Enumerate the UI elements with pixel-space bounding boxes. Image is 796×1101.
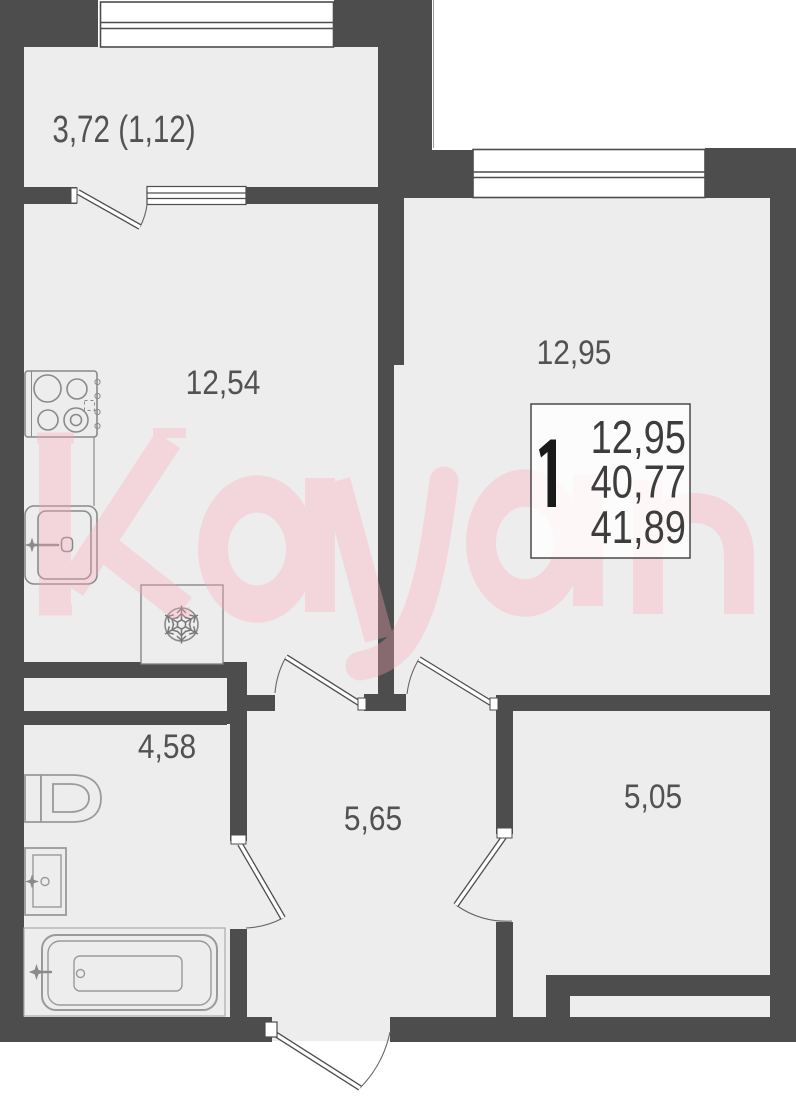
svg-text:5,65: 5,65 xyxy=(344,799,402,837)
svg-text:3,72 (1,12): 3,72 (1,12) xyxy=(52,109,195,151)
svg-text:40,77: 40,77 xyxy=(591,457,686,508)
svg-text:5,05: 5,05 xyxy=(624,777,682,815)
svg-text:4,58: 4,58 xyxy=(138,727,196,765)
svg-text:12,54: 12,54 xyxy=(186,363,261,401)
svg-text:12,95: 12,95 xyxy=(537,333,612,371)
svg-text:41,89: 41,89 xyxy=(591,503,686,554)
